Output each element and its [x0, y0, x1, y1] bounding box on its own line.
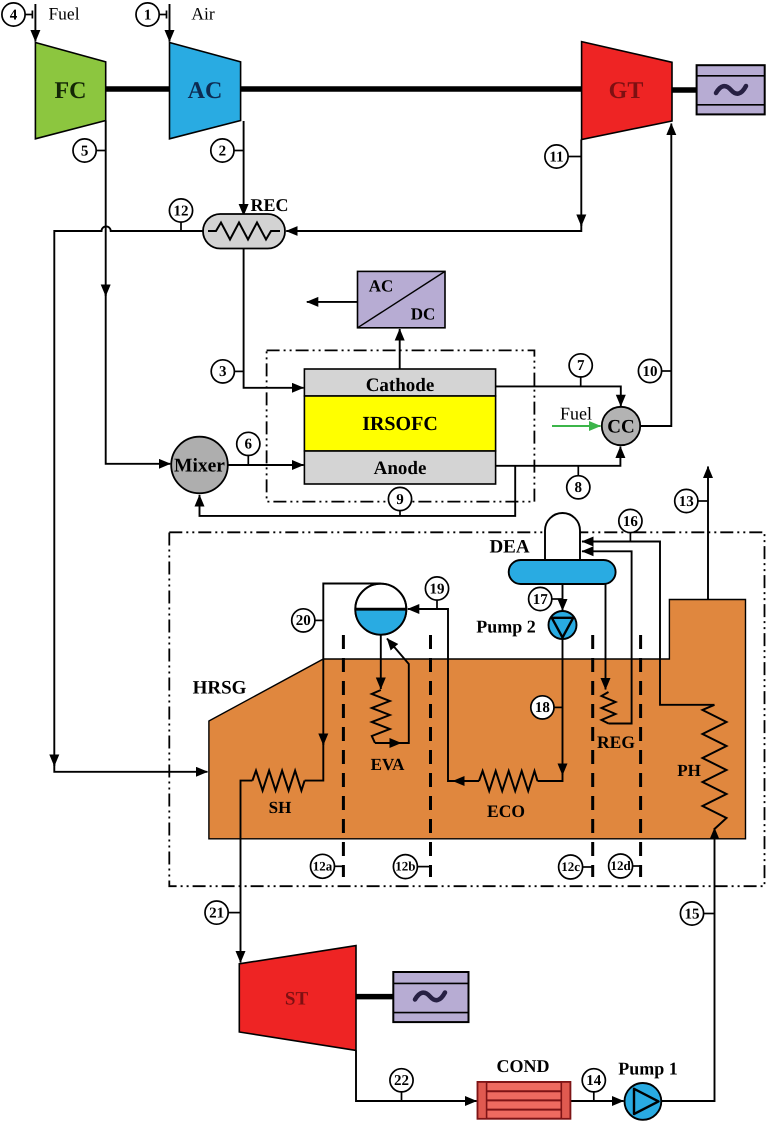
- svg-text:FC: FC: [55, 78, 87, 104]
- svg-text:10: 10: [643, 364, 658, 380]
- svg-text:Air: Air: [191, 4, 215, 24]
- svg-text:Cathode: Cathode: [366, 375, 435, 396]
- svg-text:6: 6: [245, 437, 253, 453]
- svg-text:1: 1: [144, 7, 152, 23]
- svg-text:Mixer: Mixer: [174, 456, 225, 477]
- svg-text:SH: SH: [269, 798, 292, 817]
- svg-text:ST: ST: [285, 989, 309, 1010]
- svg-text:17: 17: [533, 592, 549, 608]
- svg-text:18: 18: [535, 700, 550, 716]
- svg-text:5: 5: [81, 143, 89, 159]
- svg-text:REG: REG: [597, 732, 635, 752]
- svg-text:12b: 12b: [395, 859, 415, 874]
- svg-text:16: 16: [623, 514, 639, 530]
- svg-text:ECO: ECO: [487, 801, 525, 821]
- svg-text:21: 21: [209, 905, 224, 921]
- svg-text:2: 2: [219, 143, 227, 159]
- svg-text:DEA: DEA: [489, 537, 529, 558]
- svg-text:Fuel: Fuel: [560, 404, 592, 424]
- svg-text:12a: 12a: [313, 858, 333, 873]
- svg-text:IRSOFC: IRSOFC: [362, 413, 438, 435]
- svg-text:DC: DC: [411, 305, 436, 324]
- svg-text:11: 11: [549, 149, 563, 165]
- svg-text:15: 15: [685, 906, 700, 922]
- svg-text:9: 9: [396, 492, 404, 508]
- svg-text:8: 8: [575, 480, 583, 496]
- svg-text:12c: 12c: [561, 859, 580, 874]
- svg-text:Pump 2: Pump 2: [476, 617, 536, 637]
- svg-text:EVA: EVA: [371, 755, 405, 774]
- svg-text:AC: AC: [369, 277, 394, 296]
- svg-text:4: 4: [10, 7, 18, 23]
- svg-text:GT: GT: [609, 78, 644, 104]
- svg-text:19: 19: [430, 581, 445, 597]
- svg-text:13: 13: [679, 494, 694, 510]
- svg-text:12: 12: [174, 203, 189, 219]
- svg-text:14: 14: [586, 1073, 602, 1089]
- svg-text:CC: CC: [607, 417, 634, 438]
- svg-text:PH: PH: [677, 761, 701, 780]
- svg-text:HRSG: HRSG: [193, 678, 247, 699]
- svg-text:12d: 12d: [610, 858, 631, 873]
- svg-text:AC: AC: [188, 78, 223, 104]
- svg-text:7: 7: [577, 358, 585, 374]
- svg-text:COND: COND: [497, 1056, 550, 1076]
- svg-text:3: 3: [219, 364, 227, 380]
- svg-text:22: 22: [394, 1073, 409, 1089]
- svg-text:20: 20: [296, 613, 311, 629]
- svg-text:Fuel: Fuel: [48, 4, 79, 24]
- svg-text:REC: REC: [250, 195, 288, 215]
- svg-text:Anode: Anode: [374, 458, 427, 479]
- svg-text:Pump 1: Pump 1: [618, 1059, 678, 1079]
